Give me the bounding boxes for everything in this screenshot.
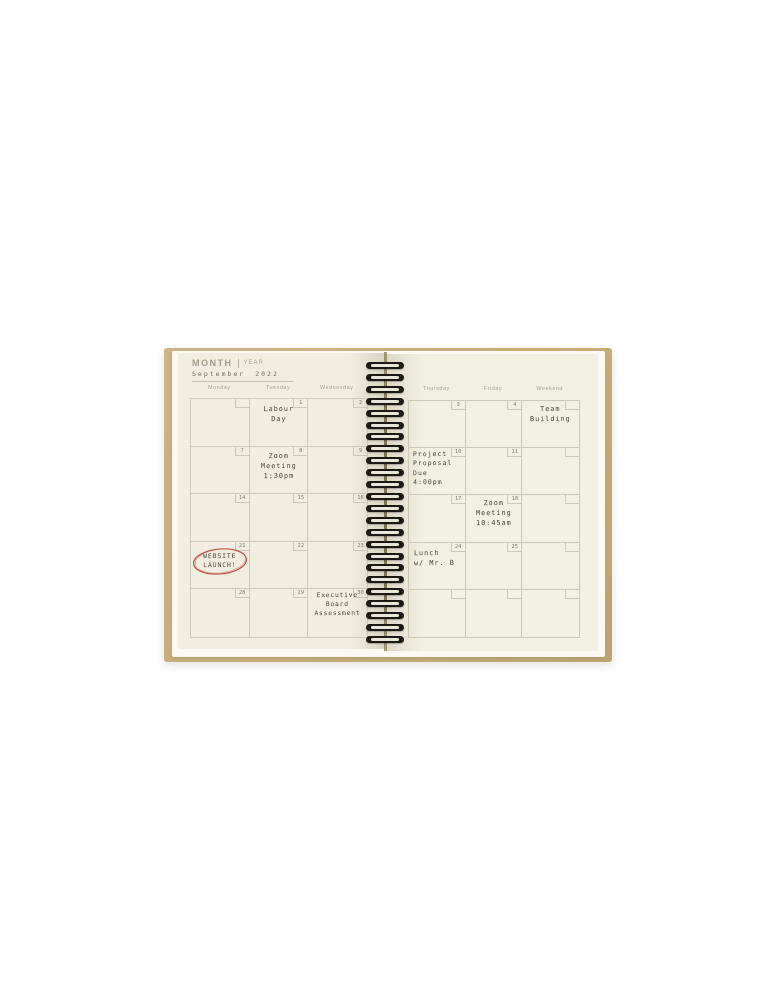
note-text: Project Proposal Due 4:00pm <box>409 450 465 488</box>
day-cell: 2 <box>308 399 367 447</box>
left-day-headers: Monday Tuesday Wednesday <box>190 385 366 391</box>
day-cell: 15 <box>250 494 309 542</box>
day-cell <box>409 590 466 637</box>
spiral-binding <box>366 362 404 643</box>
day-header-thursday: Thursday <box>408 386 465 392</box>
spiral-loop <box>366 541 404 548</box>
spiral-loop <box>366 612 404 619</box>
day-cell-website-launch: 21 WEBSITE LAUNCH! <box>191 542 250 590</box>
day-cell: 8 Zoom Meeting 1:30pm <box>250 447 309 495</box>
spiral-loop <box>366 553 404 560</box>
day-cell <box>522 590 579 637</box>
date-box: 9 <box>353 447 367 456</box>
note-text: Labour Day <box>250 405 308 425</box>
spiral-loop <box>366 374 404 381</box>
day-cell: 18 Zoom Meeting 10:45am <box>466 495 523 542</box>
day-cell <box>466 590 523 637</box>
date-box: 16 <box>353 494 367 503</box>
day-cell: 17 <box>409 495 466 542</box>
spiral-loop <box>366 529 404 536</box>
date-box: 29 <box>293 589 307 598</box>
day-cell: 22 <box>250 542 309 590</box>
day-cell: 24 Lunch w/ Mr. B <box>409 543 466 590</box>
month-header: MONTH YEAR September 2022 <box>192 358 293 382</box>
date-box: 3 <box>451 401 465 410</box>
day-cell: 30 Executive Board Assessment <box>308 589 367 637</box>
day-header-friday: Friday <box>465 386 522 392</box>
note-text: Executive Board Assessment <box>308 591 367 619</box>
spiral-loop <box>366 564 404 571</box>
photo-stage: MONTH YEAR September 2022 Monday Tuesday… <box>0 0 771 1000</box>
spiral-loop <box>366 469 404 476</box>
date-box <box>507 590 521 599</box>
date-box <box>565 448 579 457</box>
day-cell: 29 <box>250 589 309 637</box>
date-box <box>565 590 579 599</box>
spiral-loop <box>366 398 404 405</box>
spiral-loop <box>366 588 404 595</box>
spiral-loop <box>366 600 404 607</box>
date-box <box>565 495 579 504</box>
date-box: 17 <box>451 495 465 504</box>
date-box <box>565 543 579 552</box>
header-divider <box>238 359 239 368</box>
left-calendar-grid: 1 Labour Day 2 7 8 Zoom Meeting 1:30pm 9… <box>190 398 368 638</box>
header-underline <box>192 381 293 382</box>
spiral-loop <box>366 445 404 452</box>
day-header-wednesday: Wednesday <box>307 385 366 391</box>
note-text: Lunch w/ Mr. B <box>409 548 465 568</box>
note-text: Zoom Meeting 10:45am <box>466 499 522 529</box>
note-text: Team Building <box>522 405 579 425</box>
date-box: 14 <box>235 494 249 503</box>
day-cell: 28 <box>191 589 250 637</box>
day-cell <box>522 543 579 590</box>
handwritten-year: 2022 <box>255 370 279 378</box>
spiral-loop <box>366 362 404 369</box>
spiral-loop <box>366 457 404 464</box>
day-cell: Team Building <box>522 401 579 448</box>
date-box: 23 <box>353 542 367 551</box>
month-label: MONTH <box>192 358 233 368</box>
spiral-loop <box>366 481 404 488</box>
spiral-loop <box>366 410 404 417</box>
day-cell: 25 <box>466 543 523 590</box>
day-cell: 1 Labour Day <box>250 399 309 447</box>
year-label: YEAR <box>244 360 264 366</box>
day-cell <box>522 495 579 542</box>
date-box <box>235 399 249 408</box>
spiral-loop <box>366 576 404 583</box>
right-calendar-grid: 3 4 Team Building 10 Project Proposal Du… <box>408 400 580 638</box>
date-box: 15 <box>293 494 307 503</box>
date-box <box>451 590 465 599</box>
day-cell: 7 <box>191 447 250 495</box>
day-cell: 23 <box>308 542 367 590</box>
date-box: 4 <box>507 401 521 410</box>
day-cell: 14 <box>191 494 250 542</box>
note-text: Zoom Meeting 1:30pm <box>250 451 308 481</box>
day-cell: 10 Project Proposal Due 4:00pm <box>409 448 466 495</box>
right-day-headers: Thursday Friday Weekend <box>408 386 578 392</box>
red-circle-annotation-icon <box>191 546 249 577</box>
day-header-tuesday: Tuesday <box>249 385 308 391</box>
spiral-loop <box>366 505 404 512</box>
handwritten-month: September <box>192 370 245 378</box>
spiral-loop <box>366 624 404 631</box>
day-cell: 16 <box>308 494 367 542</box>
day-cell: 9 <box>308 447 367 495</box>
day-cell: 4 <box>466 401 523 448</box>
day-cell <box>191 399 250 447</box>
day-cell: 3 <box>409 401 466 448</box>
day-cell <box>522 448 579 495</box>
date-box: 7 <box>235 447 249 456</box>
day-cell: 11 <box>466 448 523 495</box>
spiral-loop <box>366 433 404 440</box>
date-box: 11 <box>507 448 521 457</box>
spiral-loop <box>366 493 404 500</box>
spiral-loop <box>366 386 404 393</box>
date-box: 22 <box>293 542 307 551</box>
spiral-loop <box>366 422 404 429</box>
day-header-weekend: Weekend <box>521 386 578 392</box>
spiral-loop <box>366 517 404 524</box>
date-box: 25 <box>507 543 521 552</box>
date-box: 28 <box>235 589 249 598</box>
spiral-loop <box>366 636 404 643</box>
date-box: 2 <box>353 399 367 408</box>
day-header-monday: Monday <box>190 385 249 391</box>
handwritten-month-year: September 2022 <box>192 370 293 378</box>
